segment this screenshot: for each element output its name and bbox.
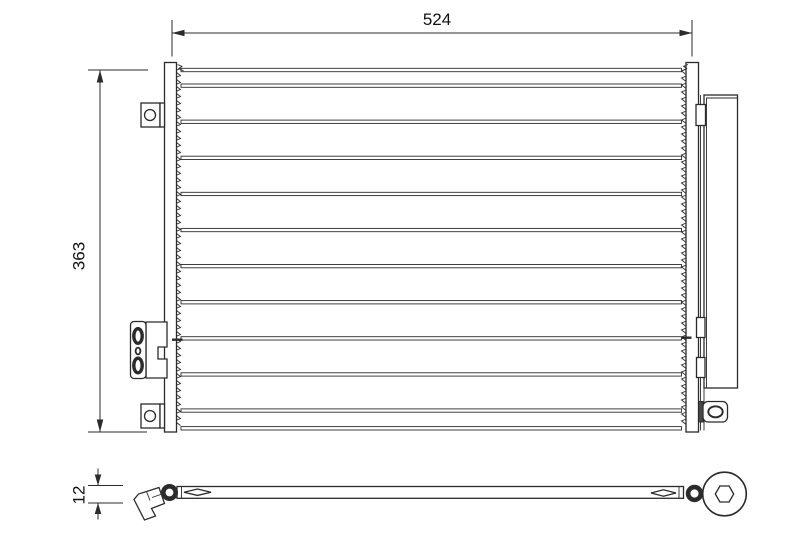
core-tube-line <box>181 156 682 159</box>
hex-plug <box>715 486 733 502</box>
dimension-width-arrow-right <box>680 30 693 37</box>
dimension-width-label: 524 <box>423 10 451 29</box>
side-view-bar <box>177 487 684 499</box>
dimension-width-arrow-left <box>172 30 185 37</box>
angled-bracket-left <box>134 488 165 521</box>
tank-partition-mark-left <box>172 339 183 341</box>
drier-bracket-stem <box>699 402 704 423</box>
mounting-bracket-bottom-left <box>141 404 165 428</box>
dimension-height-arrow-bottom <box>97 420 104 433</box>
pipe-port-bottom <box>134 358 142 373</box>
bracket-hole <box>145 411 156 422</box>
core-tube-line <box>181 301 682 304</box>
dimension-depth-label: 12 <box>70 486 89 505</box>
core-tube-line <box>181 192 682 195</box>
bracket-outline <box>134 488 165 521</box>
drier-body <box>704 95 738 388</box>
tank-partition-mark-right <box>681 337 692 339</box>
pipe-port-top <box>134 329 142 344</box>
dimension-depth-arrow-top <box>95 475 102 486</box>
bracket-hole <box>145 110 156 121</box>
front-view <box>131 63 738 433</box>
pipe-fitting-ring-left <box>163 486 175 498</box>
core-tube-line <box>181 265 682 268</box>
core-tube-line <box>181 337 682 340</box>
dimension-depth-lines <box>88 469 123 520</box>
core-tube-line <box>181 120 682 123</box>
pipe-fitting-ring-right <box>688 487 701 500</box>
core-top-edge <box>181 68 682 71</box>
core-bottom-edge <box>181 427 682 430</box>
drier-clip-lower <box>697 358 706 378</box>
bracket-flange <box>160 404 165 428</box>
technical-drawing-page: 524 363 12 <box>0 0 800 533</box>
bolt-hole <box>136 348 141 355</box>
receiver-drier <box>696 95 738 431</box>
core-tube-line <box>181 84 682 87</box>
dimension-depth: 12 <box>70 469 124 520</box>
drier-clip-middle <box>697 318 706 338</box>
dimension-depth-arrow-bottom <box>95 503 102 514</box>
pipe-connector-block <box>131 322 168 379</box>
core-tube-line <box>181 228 682 231</box>
core-tube-line <box>181 373 682 376</box>
core-tube-line <box>181 409 682 412</box>
mounting-bracket-top-left <box>141 103 165 127</box>
dimension-width: 524 <box>172 10 692 57</box>
condenser-technical-drawing: 524 363 12 <box>0 0 800 533</box>
dimension-height-arrow-top <box>97 70 104 83</box>
bracket-flange <box>160 103 165 127</box>
side-view <box>134 472 746 520</box>
dimension-height-label: 363 <box>70 242 89 270</box>
drier-clip-top <box>696 105 706 126</box>
drier-bracket-hole <box>708 406 722 417</box>
condenser-core <box>181 84 682 412</box>
